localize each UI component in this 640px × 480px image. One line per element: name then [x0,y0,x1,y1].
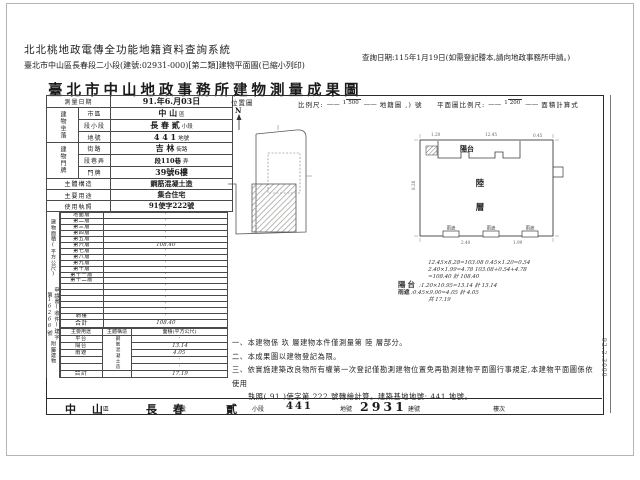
floor-total-value: 108.40 [104,319,228,327]
attached-side-label: 附屬建物 [50,328,57,378]
attached-area-header: 面積(平方公尺) [132,328,228,335]
document-info: 臺北市中山區長春段二小段(建號:02931-000)[第二類]建物平面圖(已縮小… [24,60,305,71]
floor-area-block: 建物面積(平方公尺) 申請書(收件)建字第16266號 地面層· 第二層· 第三… [46,212,228,327]
canopy-label: 雨遮 [487,225,496,232]
attached-use-header: 主要用途 [60,328,103,335]
fraction-denominator: 200 [508,99,523,106]
plan-scale: 平面圖比例尺: —— 1200 —— 面積計算式 [437,99,579,109]
attached-structures-block: 附屬建物 主要用途 主體構造 面積(平方公尺) 平台 鋼筋混凝土造 · 陽台13… [46,328,228,378]
usage-value: 集合住宅 [111,189,233,200]
handwritten-total: 17.19 [171,371,187,377]
table-row: 使用執照 91使字222號 [47,201,233,212]
fraction-denominator: 500 [346,99,361,106]
canopy-label: 雨遮 [526,225,535,232]
attached-area: · [132,363,228,370]
footer-subsection-value: 貳 [226,401,237,417]
attached-structure-header: 主體構造 [103,328,132,335]
attached-structure-value: 鋼筋混凝土造 [103,335,132,370]
canopy-bump [483,231,499,237]
table-row: 平台 鋼筋混凝土造 · [60,335,228,342]
city-value: 中 山區 [111,108,233,120]
canopy-label: 雨遮 [447,225,456,232]
lane-label: 段巷弄 [79,155,111,166]
scale-prefix: 平面圖比例尺: [437,99,485,109]
handwritten-calc-line: =108.40 計 108.40 [398,274,607,281]
footer-buildingno-label: 建號 [408,404,420,413]
section-suffix: 小段 [182,124,193,130]
note-line-2: 二、本成果圖以建物登記為限。 [232,352,341,361]
door-value: 39號6樓 [111,166,233,178]
notes-block: 一、本建物係 玖 層建物本件僅測量第 陸 層部分。 二、本成果圖以建物登記為限。… [232,336,600,404]
scale-dash: —— [488,100,501,108]
empty-cell [103,370,132,377]
canopy-bump [522,231,538,237]
survey-date-value: 91.年6.月03日 [111,96,233,108]
table-row: 建物門牌 街路 吉 林街路 [47,143,233,155]
scale-fraction: 1500 [343,101,361,107]
handwritten-area: 108.40 [156,243,176,248]
scale-suffix: 面積計算式 [541,99,579,109]
table-row: 主要用途 集合住宅 [47,189,233,200]
attached-area: · [132,335,228,342]
floor-area-table: 地面層· 第二層· 第三層· 第四層· 第五層· 第六層108.40 第七層· … [59,212,228,327]
handwritten-total: 108.40 [156,320,176,327]
footer-landno-value: 441 [286,401,313,412]
dimension-label: 1.99 [513,240,523,245]
scale-fraction: 1200 [504,101,522,107]
section-label: 段小段 [79,120,111,132]
structure-value: 鋼筋混凝土造 [111,178,233,189]
scale-dash: —— [327,100,340,108]
lane-text: 段110巷 [154,157,181,165]
door-text: 39號6樓 [155,167,188,177]
attached-total-value: 17.19 [132,370,228,377]
table-row: · [60,356,228,363]
right-margin-line [610,95,611,413]
floor-word-label: 層 [476,202,485,213]
handwritten-area: 13.14 [171,343,187,349]
city-text: 中 山 [158,108,177,118]
attached-use [60,356,103,363]
structure-label: 主體構造 [47,178,111,189]
scale-dash: —— [525,100,538,108]
attached-total-label: 合計 [60,370,103,377]
land-no-suffix: 地號 [178,136,189,142]
dimension-label: 1.20 [431,132,441,137]
attached-use: 平台 [60,335,103,342]
license-value: 91使字222號 [111,201,233,212]
canopy-calc-line: 雨遮 :0.45×9.00=4.05 計 4.05 [398,290,606,297]
table-row: 陽台13.14 [60,342,228,349]
form-version-code: 92.2.3000 [600,338,607,378]
attached-area-handwritten: 13.14 [132,342,228,349]
table-row: 建物坐落 市區 中 山區 [47,108,233,120]
attached-use: 雨遮 [60,349,103,356]
floor-plan-drawing: 陽台 陸 層 雨遮 雨遮 雨遮 1.20 12.45 0.45 8.28 2.4… [395,120,607,246]
street-suffix: 街路 [176,147,187,153]
area-computation-block: 12.45×8.28=103.08 0.45×1.20=0.54 2.40×1.… [398,260,606,304]
system-title: 北北桃地政電傳全功能地籍資料查詢系統 [24,42,231,57]
stairwell-hatch [426,146,437,155]
floor-number-label: 陸 [476,178,485,189]
location-group-label: 建物坐落 [47,108,79,143]
lane-value: 段110巷弄 [111,155,233,166]
street-label: 街路 [79,143,111,155]
handwritten-area: 4.05 [173,350,186,356]
handwritten-calc-line: 12.45×8.28=103.08 0.45×1.20=0.54 [398,260,607,267]
dimension-label: 2.40 [461,240,471,245]
query-date: 查詢日期:115年1月19日(如需登記謄本,請向地政事務所申請。) [362,52,570,63]
right-notch [553,167,563,177]
floor-area-side-label: 建物面積(平方公尺) [50,212,57,284]
attached-side-strip: 附屬建物 [46,328,61,378]
attached-use [60,363,103,370]
survey-date-label: 測量日期 [47,96,111,108]
door-label: 門牌 [79,166,111,178]
table-row: 主要用途 主體構造 面積(平方公尺) [60,328,228,335]
usage-label: 主要用途 [47,189,111,200]
floor-area-side-strip: 建物面積(平方公尺) 申請書(收件)建字第16266號 [46,212,61,327]
balcony-label: 陽台 [460,144,474,153]
footer-strip: 中 山 區 長 春 段 貳 小段 441 地號 2931 建號 樓次 [46,398,602,414]
balcony-calc-label: 陽台 [398,280,417,289]
land-no-value: 4 4 1地號 [111,132,233,143]
attached-area-handwritten: 4.05 [132,349,228,356]
dimension-label: 12.45 [485,132,497,137]
table-row: · [60,363,228,370]
footer-buildingno-value: 2931 [360,399,407,414]
balcony-calc-line: 陽台 :1.20×10.95=13.14 計 13.14 [398,281,606,290]
handwritten-calc-line: 2.40×1.99=4.78 103.08+0.54+4.78 [398,267,607,274]
lane-suffix: 弄 [183,159,189,165]
building-info-panel: 測量日期 91.年6.月03日 建物坐落 市區 中 山區 段小段 長 春 貳小段… [46,95,228,378]
scanned-survey-document: 北北桃地政電傳全功能地籍資料查詢系統 臺北市中山區長春段二小段(建號:02931… [0,0,640,480]
street-text: 吉 林 [156,143,175,153]
attached-use: 陽台 [60,342,103,349]
footer-district-label: 區 [103,404,109,413]
handwritten-calc-line: :1.20×10.95=13.14 計 13.14 [418,283,497,290]
footer-landno-label: 地號 [340,404,352,413]
footer-subsection-label: 小段 [252,404,264,413]
handwritten-calc-line: :0.45×9.00=4.05 計 4.05 [411,290,479,297]
cadastral-scale: 比例尺: —— 1500 —— 地籍圖 ,) 號 [298,99,422,109]
footer-section-label: 段 [180,404,186,413]
balcony-outline [438,141,520,158]
handwritten-calc-line: 共 17.19 [398,297,607,304]
location-sketch [228,116,328,246]
footer-floor-label: 樓次 [493,404,505,413]
street-value: 吉 林街路 [111,143,233,155]
table-row: 測量日期 91.年6.月03日 [47,96,233,108]
note-line-1: 一、本建物係 玖 層建物本件僅測量第 陸 層部分。 [232,338,407,347]
table-row: 雨遮4.05 [60,349,228,356]
canopy-bump [443,231,459,237]
land-no-text: 4 4 1 [154,132,176,142]
city-suffix: 區 [179,112,185,118]
dimension-label: 8.28 [411,180,416,190]
table-row: 主體構造 鋼筋混凝土造 [47,178,233,189]
application-number: 16266 [47,297,53,330]
scale-dash: —— [364,100,377,108]
section-value: 長 春 貳小段 [111,120,233,132]
address-group-label: 建物門牌 [47,143,79,178]
license-label: 使用執照 [47,201,111,212]
table-row: 合計108.40 [60,319,228,327]
scale-prefix: 比例尺: [298,99,324,109]
section-text: 長 春 貳 [150,120,180,130]
note-line-3: 三、依實施建築改良物所有權第一次登記僅勘測建物位置免再勘測建物平面圖行事規定,本… [232,365,593,388]
canopy-calc-label: 雨遮 [398,290,410,296]
scale-suffix: 地籍圖 ,) 號 [380,99,423,109]
city-label: 市區 [79,108,111,120]
attached-structures-table: 主要用途 主體構造 面積(平方公尺) 平台 鋼筋混凝土造 · 陽台13.14 雨… [59,328,228,378]
dimension-label: 0.45 [533,133,543,138]
plan-outline [420,140,553,236]
building-attributes-table: 測量日期 91.年6.月03日 建物坐落 市區 中 山區 段小段 長 春 貳小段… [46,95,233,212]
land-no-label: 地號 [79,132,111,143]
attached-area: · [132,356,228,363]
table-row: 合計 17.19 [60,370,228,377]
floor-total-label: 合計 [60,319,104,327]
